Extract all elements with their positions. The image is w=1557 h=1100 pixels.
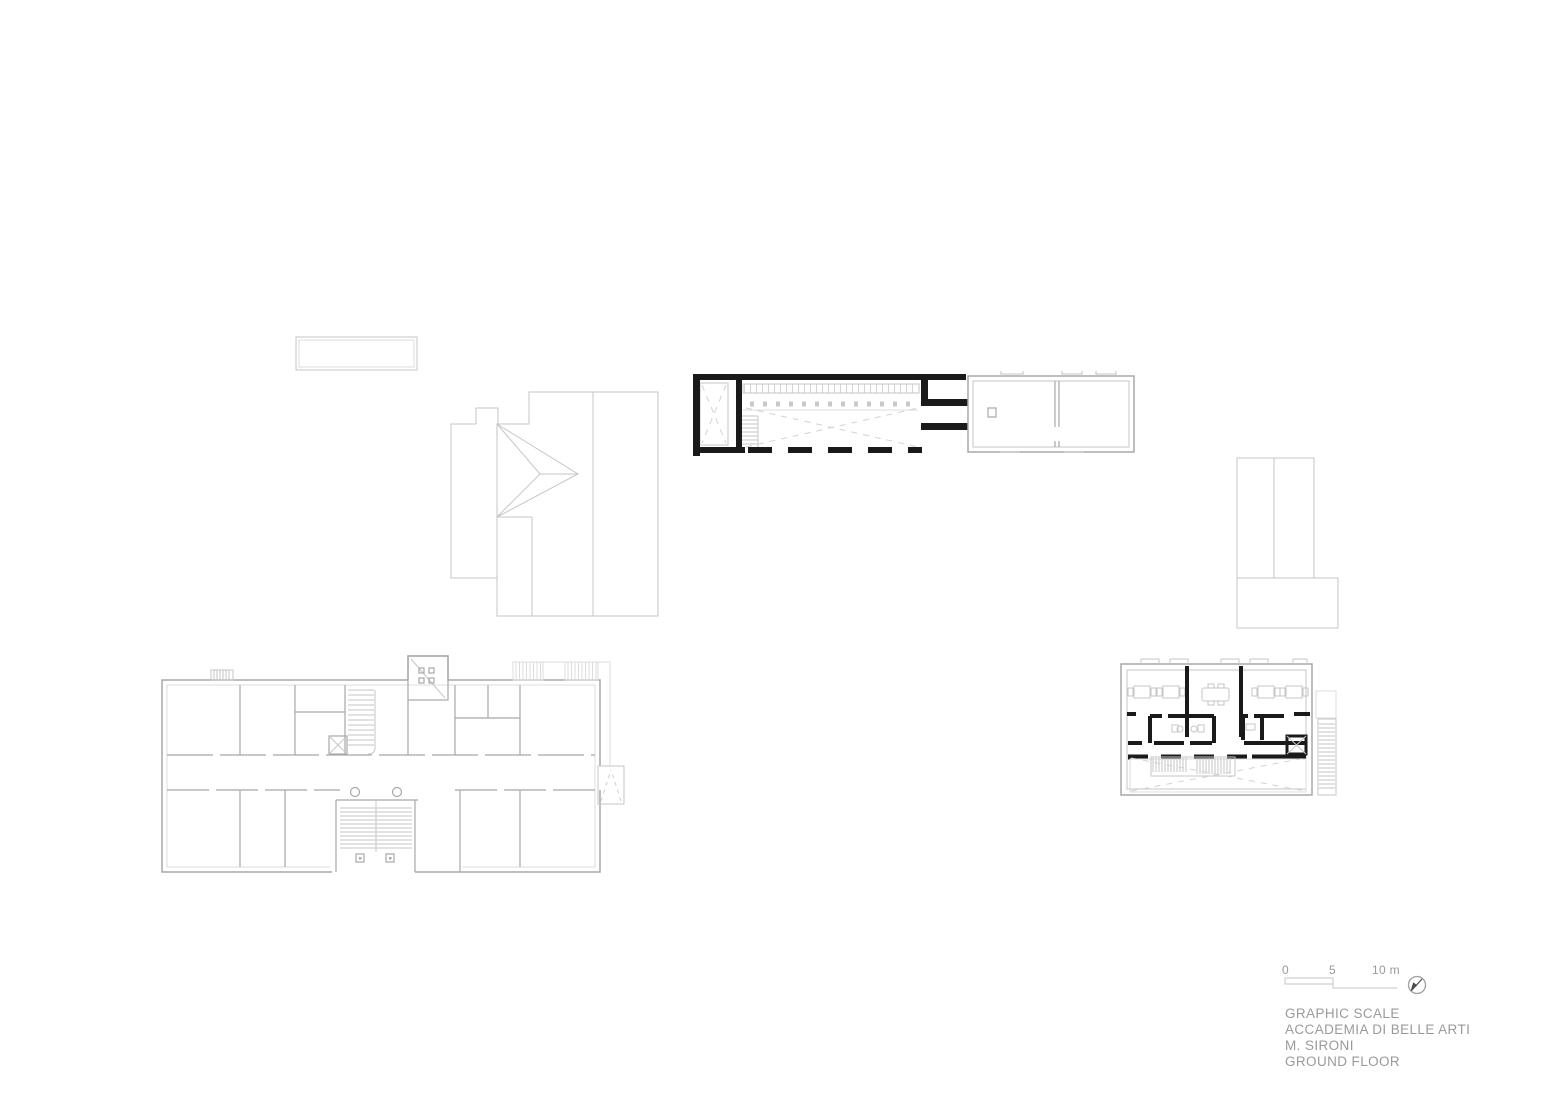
round-column <box>351 788 360 797</box>
hall-interior-details <box>700 383 919 447</box>
sironi-hall-plan <box>693 374 968 456</box>
neighbor-roof-plan <box>1237 458 1338 628</box>
hall-staircase <box>742 416 758 447</box>
title-floor-label: GROUND FLOOR <box>1285 1054 1400 1069</box>
entrance-portico <box>336 788 418 863</box>
scale-tick-0: 0 <box>1282 963 1289 977</box>
annex-column <box>988 408 996 417</box>
upper-room-walls <box>240 685 520 755</box>
desk <box>1157 686 1185 698</box>
roof-plan <box>451 392 658 616</box>
annex-east-plan <box>968 371 1134 452</box>
north-arrow-icon <box>1409 977 1426 994</box>
main-building-plan <box>162 656 624 872</box>
scale-bar <box>1285 978 1397 988</box>
main-elevator <box>329 736 347 754</box>
scale-tick-5: 5 <box>1329 963 1336 977</box>
office-bold-walls <box>1127 666 1310 757</box>
office-wing-plan <box>1121 659 1336 795</box>
access-ramp <box>598 766 624 804</box>
exterior-stair-east <box>1316 691 1336 795</box>
title-graphic-scale: GRAPHIC SCALE <box>1285 1006 1400 1021</box>
floor-plan-drawing <box>0 0 1557 1100</box>
scale-tick-10m: 10 m <box>1372 963 1400 977</box>
meeting-table <box>1202 684 1229 705</box>
round-column <box>393 788 402 797</box>
title-building-name: M. SIRONI <box>1285 1038 1354 1053</box>
office-lower-hall <box>1130 757 1306 792</box>
title-project-name: ACCADEMIA DI BELLE ARTI <box>1285 1022 1470 1037</box>
desk <box>1252 686 1280 698</box>
lower-room-walls <box>240 790 520 872</box>
desk <box>1128 686 1156 698</box>
exterior-stair-north <box>211 670 233 680</box>
main-staircase <box>348 690 375 754</box>
office-desks <box>1128 684 1308 705</box>
architectural-drawing-sheet: 0 5 10 m GRAPHIC SCALE ACCADEMIA DI BELL… <box>0 0 1557 1100</box>
stair-tower <box>408 656 448 700</box>
desk <box>1280 686 1308 698</box>
annex-partition-wall <box>1055 381 1059 447</box>
outbuilding-plan <box>296 337 417 370</box>
